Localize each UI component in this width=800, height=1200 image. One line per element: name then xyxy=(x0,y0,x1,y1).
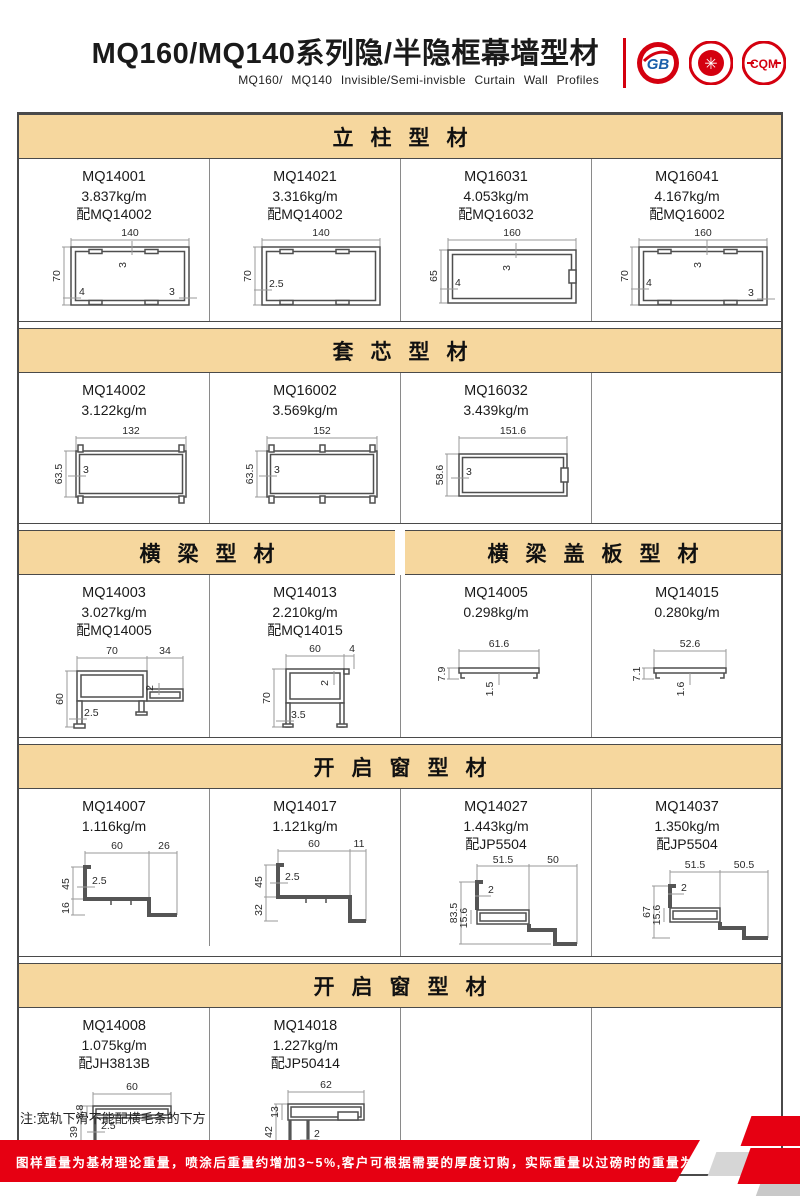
svg-text:132: 132 xyxy=(122,425,140,437)
svg-text:GB: GB xyxy=(647,56,670,73)
svg-text:45: 45 xyxy=(60,878,72,890)
svg-text:7.9: 7.9 xyxy=(436,667,448,682)
svg-text:4: 4 xyxy=(455,277,461,289)
profile-code: MQ14002 xyxy=(19,382,209,401)
profile-cell-mq14027: MQ14027 1.443kg/m 配JP5504 51.5 50 83.5 1… xyxy=(400,789,591,955)
profile-cell-mq14005: MQ14005 0.298kg/m 61.6 7.9 1.5 xyxy=(400,575,591,737)
svg-text:51.5: 51.5 xyxy=(493,856,514,866)
profile-drawing-mq14005: 61.6 7.9 1.5 xyxy=(401,623,591,719)
section-row-windows1: MQ14007 1.116kg/m 60 26 45 16 2.5 MQ1401… xyxy=(19,789,781,956)
title-block: MQ160/MQ140系列隐/半隐框幕墙型材 MQ160/ MQ140 Invi… xyxy=(92,39,599,87)
cqm-logo-icon: CQM xyxy=(742,41,786,85)
svg-text:15.6: 15.6 xyxy=(458,907,470,928)
svg-text:4: 4 xyxy=(79,286,85,298)
svg-text:62: 62 xyxy=(320,1079,332,1091)
band-label: 开启窗型材 xyxy=(19,744,781,789)
profile-weight: 3.027kg/m xyxy=(19,603,209,621)
svg-text:70: 70 xyxy=(106,645,118,657)
svg-text:151.6: 151.6 xyxy=(500,425,526,437)
profile-weight: 3.837kg/m xyxy=(19,187,209,205)
profile-cell-mq16032: MQ16032 3.439kg/m 151.6 58.6 3 xyxy=(400,373,591,523)
profile-code: MQ16041 xyxy=(592,168,782,187)
profile-pair: 配JH3813B xyxy=(19,1054,209,1072)
profile-code: MQ14007 xyxy=(19,798,209,817)
profile-cell-mq16002: MQ16002 3.569kg/m 152 63.5 3 xyxy=(209,373,400,523)
svg-text:3.5: 3.5 xyxy=(291,709,306,721)
footnote: 注:宽轨下滑不能配横毛条的下方 xyxy=(20,1108,206,1127)
svg-text:2: 2 xyxy=(488,884,494,896)
profile-code: MQ14015 xyxy=(592,584,782,603)
band-label: 横梁型材 xyxy=(19,530,395,575)
profile-pair: 配MQ14002 xyxy=(19,205,209,223)
decorative-parallelogram-gray2 xyxy=(756,1184,800,1196)
profile-weight: 0.298kg/m xyxy=(401,603,591,621)
svg-text:2.5: 2.5 xyxy=(84,707,99,719)
section-row-beams: MQ14003 3.027kg/m 配MQ14005 70 34 60 2.5 … xyxy=(19,575,781,738)
decorative-parallelogram-red xyxy=(741,1116,800,1146)
profile-drawing-mq14001: 140 70 3 4 3 xyxy=(19,225,209,321)
svg-text:26: 26 xyxy=(158,840,170,852)
svg-text:3: 3 xyxy=(692,262,704,268)
quality-seal-icon: ✳ xyxy=(689,41,733,85)
profile-cell-mq14017: MQ14017 1.121kg/m 60 11 45 32 2.5 xyxy=(209,789,400,946)
profile-pair: 配MQ14002 xyxy=(210,205,400,223)
svg-text:2: 2 xyxy=(319,680,331,686)
svg-text:1.6: 1.6 xyxy=(675,682,687,697)
svg-text:58.6: 58.6 xyxy=(434,465,446,486)
profile-code: MQ14027 xyxy=(401,798,591,817)
profile-code: MQ16002 xyxy=(210,382,400,401)
profile-drawing-mq16002: 152 63.5 3 xyxy=(210,421,400,521)
page-subtitle: MQ160/ MQ140 Invisible/Semi-invisble Cur… xyxy=(92,73,599,87)
section-band-beams: 横梁型材 横梁盖板型材 xyxy=(19,530,781,575)
page-header: MQ160/MQ140系列隐/半隐框幕墙型材 MQ160/ MQ140 Invi… xyxy=(0,0,800,100)
svg-text:2.5: 2.5 xyxy=(269,278,284,290)
profile-weight: 1.075kg/m xyxy=(19,1036,209,1054)
svg-text:70: 70 xyxy=(261,692,273,704)
svg-text:61.6: 61.6 xyxy=(489,638,510,650)
svg-text:2: 2 xyxy=(144,685,156,691)
svg-text:60: 60 xyxy=(54,693,66,705)
profile-cell-mq14003: MQ14003 3.027kg/m 配MQ14005 70 34 60 2.5 … xyxy=(19,575,209,737)
header-divider xyxy=(623,38,626,88)
svg-text:3: 3 xyxy=(466,466,472,478)
profile-weight: 3.316kg/m xyxy=(210,187,400,205)
profile-pair: 配MQ16032 xyxy=(401,205,591,223)
svg-text:3: 3 xyxy=(274,464,280,476)
svg-text:4: 4 xyxy=(349,643,355,655)
profile-code: MQ14017 xyxy=(210,798,400,817)
section-band-cores: 套芯型材 xyxy=(19,328,781,373)
profile-drawing-mq14037: 51.5 50.5 67 15.6 2 xyxy=(592,856,782,956)
profile-pair: 配MQ14015 xyxy=(210,621,400,639)
profile-pair: 配MQ14005 xyxy=(19,621,209,639)
svg-text:3: 3 xyxy=(501,265,513,271)
svg-text:3: 3 xyxy=(83,464,89,476)
svg-text:65: 65 xyxy=(428,270,440,282)
profile-pair: 配JP5504 xyxy=(592,835,782,853)
profile-cell-mq16041: MQ16041 4.167kg/m 配MQ16002 160 70 3 4 3 xyxy=(591,159,782,321)
profile-cell-mq14015: MQ14015 0.280kg/m 52.6 7.1 1.6 xyxy=(591,575,782,737)
svg-text:42: 42 xyxy=(263,1126,275,1138)
section-band-windows1: 开启窗型材 xyxy=(19,744,781,789)
footer-text: 图样重量为基材理论重量，喷涂后重量约增加3~5%,客户可根据需要的厚度订购，实际… xyxy=(0,1152,723,1171)
svg-text:51.5: 51.5 xyxy=(685,859,706,871)
svg-text:70: 70 xyxy=(51,270,63,282)
profile-weight: 4.053kg/m xyxy=(401,187,591,205)
svg-text:16: 16 xyxy=(60,902,72,914)
profile-cell-mq14001: MQ14001 3.837kg/m 配MQ14002 140 70 3 4 3 xyxy=(19,159,209,321)
profile-weight: 3.439kg/m xyxy=(401,401,591,419)
profile-drawing-mq14013: 60 4 70 2 3.5 xyxy=(210,641,400,737)
profile-pair: 配JP5504 xyxy=(401,835,591,853)
svg-text:152: 152 xyxy=(313,425,331,437)
section-band-columns: 立柱型材 xyxy=(19,114,781,159)
profile-weight: 4.167kg/m xyxy=(592,187,782,205)
gb-certification-icon: GB xyxy=(636,41,680,85)
profile-code: MQ16031 xyxy=(401,168,591,187)
svg-text:45: 45 xyxy=(253,876,265,888)
profile-cell-mq14007: MQ14007 1.116kg/m 60 26 45 16 2.5 xyxy=(19,789,209,946)
section-row-columns: MQ14001 3.837kg/m 配MQ14002 140 70 3 4 3 … xyxy=(19,159,781,322)
profile-cell-mq14037: MQ14037 1.350kg/m 配JP5504 51.5 50.5 67 1… xyxy=(591,789,782,955)
profile-drawing-mq16031: 160 65 3 4 xyxy=(401,225,591,321)
svg-text:4: 4 xyxy=(646,277,652,289)
svg-text:60: 60 xyxy=(309,643,321,655)
svg-text:140: 140 xyxy=(121,227,139,239)
profile-weight: 0.280kg/m xyxy=(592,603,782,621)
profile-pair: 配JP50414 xyxy=(210,1054,400,1072)
profile-code: MQ14018 xyxy=(210,1017,400,1036)
svg-text:✳: ✳ xyxy=(704,56,717,73)
certification-logos: GB ✳ CQM xyxy=(636,41,786,85)
profile-weight: 1.350kg/m xyxy=(592,817,782,835)
svg-text:11: 11 xyxy=(354,838,365,850)
band-label: 套芯型材 xyxy=(19,328,781,373)
svg-text:50: 50 xyxy=(547,856,559,866)
svg-text:70: 70 xyxy=(242,270,254,282)
band-label: 开启窗型材 xyxy=(19,963,781,1008)
profile-drawing-mq16041: 160 70 3 4 3 xyxy=(592,225,782,321)
section-band-windows2: 开启窗型材 xyxy=(19,963,781,1008)
svg-text:15.6: 15.6 xyxy=(651,904,663,925)
svg-text:39: 39 xyxy=(68,1126,80,1138)
profile-code: MQ14013 xyxy=(210,584,400,603)
svg-text:2: 2 xyxy=(681,882,687,894)
svg-text:32: 32 xyxy=(253,904,265,916)
profile-cell-mq14013: MQ14013 2.210kg/m 配MQ14015 60 4 70 2 3.5 xyxy=(209,575,400,737)
band-label: 横梁盖板型材 xyxy=(405,530,781,575)
profile-code: MQ14003 xyxy=(19,584,209,603)
svg-text:50.5: 50.5 xyxy=(734,859,755,871)
profile-cell-mq14021: MQ14021 3.316kg/m 配MQ14002 140 70 2.5 xyxy=(209,159,400,321)
section-row-cores: MQ14002 3.122kg/m 132 63.5 3 MQ16002 3.5… xyxy=(19,373,781,524)
svg-text:60: 60 xyxy=(111,840,123,852)
profile-drawing-mq14021: 140 70 2.5 xyxy=(210,225,400,321)
svg-text:3: 3 xyxy=(117,262,129,268)
page-title: MQ160/MQ140系列隐/半隐框幕墙型材 xyxy=(92,39,599,69)
profile-weight: 3.569kg/m xyxy=(210,401,400,419)
profile-catalog-table: 立柱型材 MQ14001 3.837kg/m 配MQ14002 140 70 3… xyxy=(17,112,783,1176)
profile-drawing-mq14027: 51.5 50 83.5 15.6 2 xyxy=(401,856,591,956)
svg-text:2.5: 2.5 xyxy=(285,871,300,883)
profile-cell-mq14002: MQ14002 3.122kg/m 132 63.5 3 xyxy=(19,373,209,523)
profile-drawing-mq14007: 60 26 45 16 2.5 xyxy=(19,837,209,937)
profile-code: MQ14037 xyxy=(592,798,782,817)
profile-weight: 1.443kg/m xyxy=(401,817,591,835)
svg-text:63.5: 63.5 xyxy=(244,464,256,485)
svg-text:34: 34 xyxy=(159,645,171,657)
profile-drawing-mq16032: 151.6 58.6 3 xyxy=(401,421,591,521)
profile-code: MQ14008 xyxy=(19,1017,209,1036)
profile-code: MQ14021 xyxy=(210,168,400,187)
profile-weight: 3.122kg/m xyxy=(19,401,209,419)
profile-drawing-mq14017: 60 11 45 32 2.5 xyxy=(210,837,400,937)
svg-text:2: 2 xyxy=(314,1128,320,1140)
empty-cell xyxy=(591,373,781,523)
profile-drawing-mq14015: 52.6 7.1 1.6 xyxy=(592,623,782,719)
profile-cell-mq16031: MQ16031 4.053kg/m 配MQ16032 160 65 3 4 xyxy=(400,159,591,321)
svg-text:63.5: 63.5 xyxy=(53,464,65,485)
profile-code: MQ16032 xyxy=(401,382,591,401)
svg-text:60: 60 xyxy=(126,1081,138,1093)
profile-pair: 配MQ16002 xyxy=(592,205,782,223)
svg-text:140: 140 xyxy=(312,227,330,239)
profile-weight: 1.227kg/m xyxy=(210,1036,400,1054)
profile-drawing-mq14002: 132 63.5 3 xyxy=(19,421,209,521)
svg-text:60: 60 xyxy=(308,838,320,850)
profile-weight: 1.116kg/m xyxy=(19,817,209,835)
svg-text:13: 13 xyxy=(269,1106,281,1118)
profile-weight: 2.210kg/m xyxy=(210,603,400,621)
svg-text:3: 3 xyxy=(169,286,175,298)
profile-code: MQ14001 xyxy=(19,168,209,187)
svg-text:160: 160 xyxy=(503,227,521,239)
svg-text:1.5: 1.5 xyxy=(484,682,496,697)
profile-weight: 1.121kg/m xyxy=(210,817,400,835)
band-label: 立柱型材 xyxy=(19,114,781,159)
profile-drawing-mq14003: 70 34 60 2.5 2 xyxy=(19,641,209,737)
svg-text:CQM: CQM xyxy=(750,57,778,71)
svg-text:70: 70 xyxy=(619,270,631,282)
svg-text:2.5: 2.5 xyxy=(92,875,107,887)
svg-text:52.6: 52.6 xyxy=(680,638,701,650)
svg-text:160: 160 xyxy=(694,227,712,239)
svg-text:7.1: 7.1 xyxy=(631,667,643,682)
footer-bar: 图样重量为基材理论重量，喷涂后重量约增加3~5%,客户可根据需要的厚度订购，实际… xyxy=(0,1140,700,1182)
profile-code: MQ14005 xyxy=(401,584,591,603)
svg-text:3: 3 xyxy=(748,287,754,299)
